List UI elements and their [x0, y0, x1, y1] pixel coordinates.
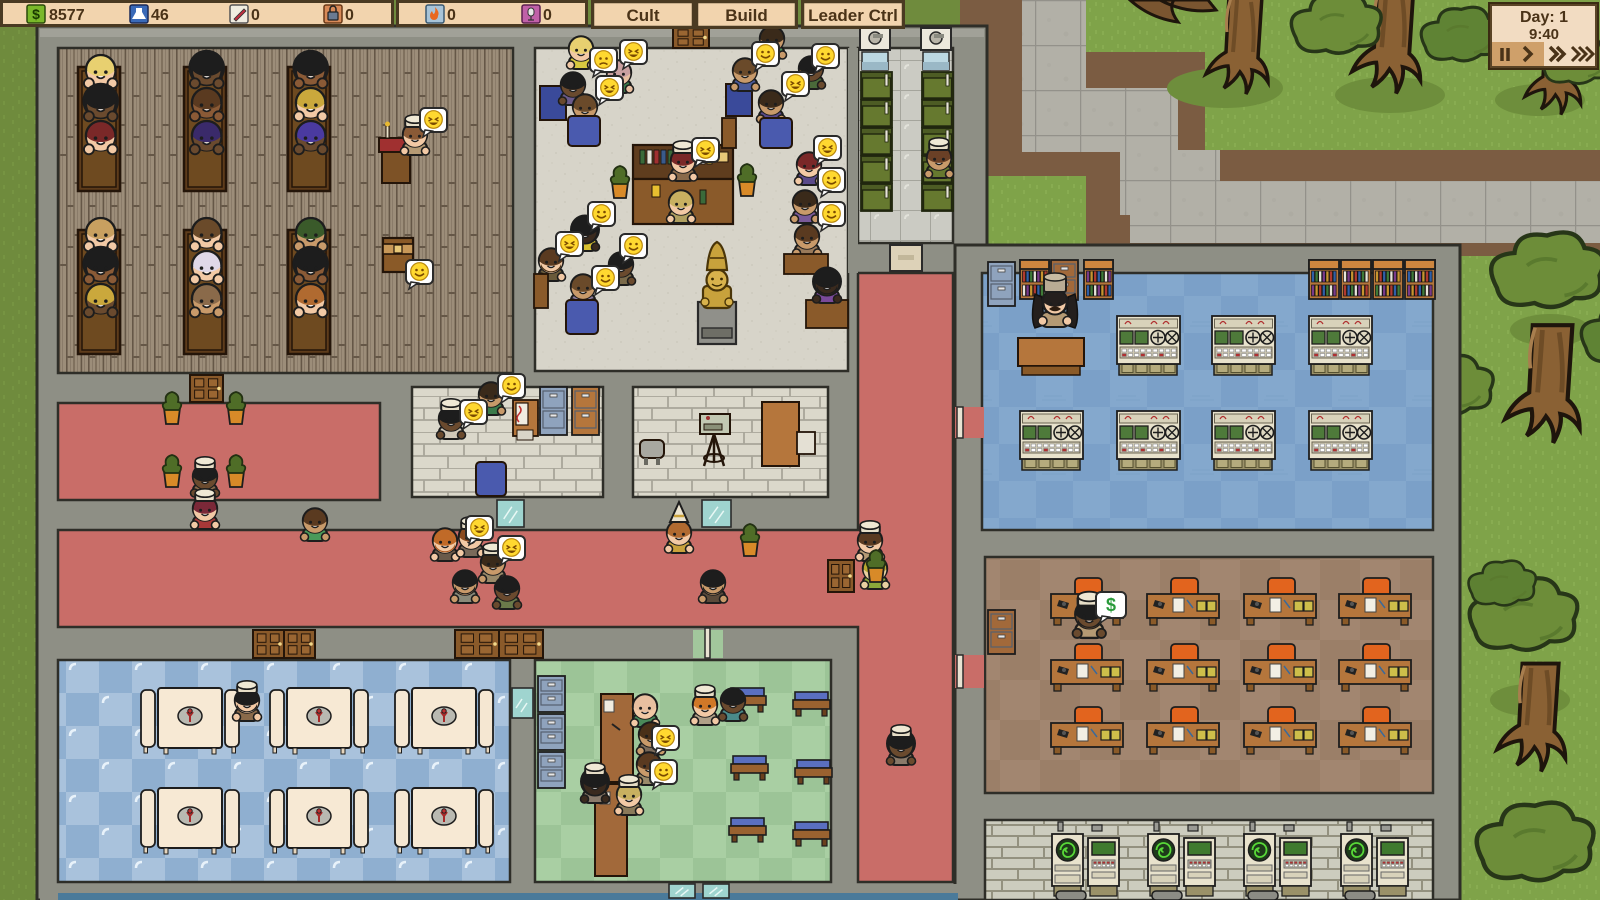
- svg-text:Leader Ctrl: Leader Ctrl: [808, 6, 898, 25]
- svg-text:Day: 1: Day: 1: [1520, 9, 1568, 26]
- svg-text:46: 46: [151, 7, 169, 24]
- svg-text:0: 0: [543, 7, 552, 24]
- svg-text:0: 0: [251, 7, 260, 24]
- svg-text:8577: 8577: [49, 7, 85, 24]
- svg-text:9:40: 9:40: [1529, 26, 1559, 43]
- svg-text:Build: Build: [725, 6, 768, 25]
- svg-text:$: $: [32, 6, 40, 22]
- svg-text:0: 0: [345, 7, 354, 24]
- svg-text:$: $: [1106, 595, 1116, 615]
- svg-text:Cult: Cult: [626, 6, 659, 25]
- svg-text:0: 0: [447, 7, 456, 24]
